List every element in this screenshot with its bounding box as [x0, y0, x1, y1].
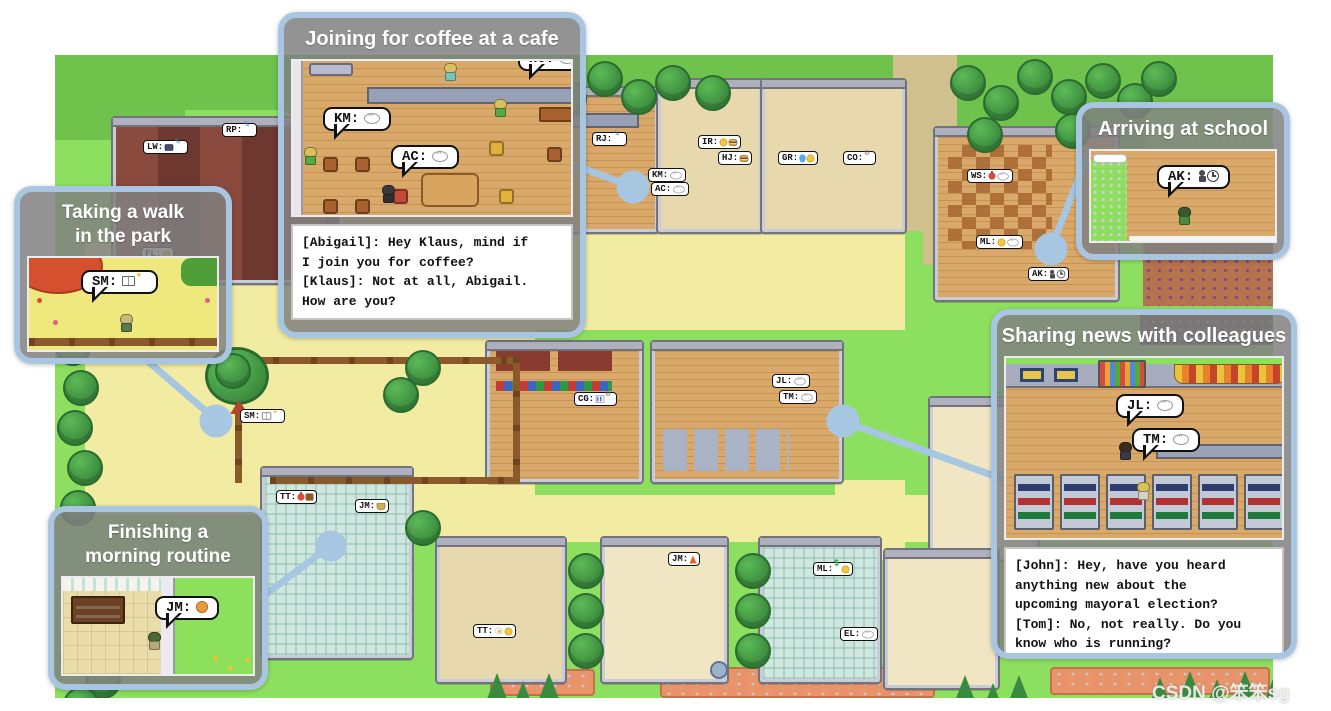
callout-news-dialogue: [John]: Hey, have you heard anything new…	[1004, 547, 1284, 659]
bubble-code: SM:	[92, 274, 117, 290]
chair	[323, 157, 338, 172]
speech-bubble-ak: AK:	[1157, 165, 1230, 189]
agent-sprite	[147, 632, 162, 654]
shelf	[1152, 474, 1192, 530]
figure-icon	[1049, 269, 1055, 278]
pencil-icon	[175, 143, 184, 152]
agent-chip-code: ML:	[980, 237, 996, 247]
agent-chip-code: RJ:	[596, 134, 612, 144]
agent-sprite	[119, 314, 134, 336]
picture-frame	[1020, 368, 1044, 382]
scrollbar[interactable]	[1129, 236, 1277, 241]
bubble-icons	[1198, 169, 1219, 185]
tree	[568, 633, 604, 669]
agent-chip: LW:	[143, 140, 188, 154]
shelf	[1060, 474, 1100, 530]
coin-icon	[505, 627, 513, 635]
chair	[323, 199, 338, 214]
callout-cafe-dialogue: [Abigail]: Hey Klaus, mind if I join you…	[291, 224, 573, 320]
speech-bubble-sm: SM:	[81, 270, 158, 294]
callout-park: Taking a walk in the park SM:	[14, 186, 232, 364]
agent-sprite	[381, 185, 396, 207]
chat-icon	[794, 377, 806, 385]
tool-icon	[606, 395, 614, 404]
umbrella	[710, 661, 728, 679]
fence	[29, 338, 217, 346]
agent-chip-code: ML:	[817, 564, 833, 574]
screenshot-canvas: LW:RP:FL:RJ:IR:HJ:GR:CO:KM:AC:WS:ML:AK:S…	[0, 0, 1331, 711]
bubble-icons	[559, 59, 573, 67]
callout-cafe: Joining for coffee at a cafe KM: AC: HU:…	[278, 12, 586, 338]
coin-icon	[842, 565, 850, 573]
cat-icon	[196, 601, 208, 613]
bubble-code: HU:	[529, 59, 554, 67]
tree	[735, 633, 771, 669]
chat-icon	[432, 151, 448, 162]
pine-tree	[1009, 675, 1029, 698]
tree	[621, 79, 657, 115]
chat-icon	[801, 393, 813, 401]
bubble-code: JL:	[1127, 398, 1152, 414]
agent-chip: GR:	[778, 151, 818, 165]
bubble-icons	[432, 149, 448, 165]
agent-chip: KM:	[648, 168, 686, 182]
chat-icon	[364, 113, 380, 124]
agent-chip-code: CO:	[847, 153, 863, 163]
agent-chip-code: TT:	[477, 626, 493, 636]
tree	[568, 553, 604, 589]
clock-icon	[1057, 270, 1066, 279]
agent-chip: RP:	[222, 123, 257, 137]
callout-park-title: Taking a walk in the park	[20, 192, 226, 256]
tree	[695, 75, 731, 111]
basket-icon	[377, 503, 386, 509]
garland	[1174, 364, 1284, 384]
chat-icon	[862, 630, 874, 638]
shelf	[1198, 474, 1238, 530]
tree	[950, 65, 986, 101]
fence	[235, 357, 520, 364]
book-icon	[262, 412, 271, 419]
agent-chip-code: KM:	[652, 170, 668, 180]
book-icon	[122, 276, 135, 286]
chair	[355, 199, 370, 214]
bubble-icons	[1157, 398, 1173, 414]
agent-sprite	[1177, 207, 1192, 229]
agent-chip: HJ:	[718, 151, 752, 165]
scrollbar[interactable]	[1093, 154, 1127, 163]
building-house	[437, 538, 565, 682]
callout-school-scene: AK:	[1089, 149, 1277, 243]
shelf	[1014, 474, 1054, 530]
tree	[405, 510, 441, 546]
flower-stand	[1098, 360, 1146, 388]
dollar-icon	[834, 565, 840, 574]
flower	[245, 658, 250, 663]
agent-chip: WS:	[967, 169, 1013, 183]
callout-news: Sharing news with colleagues JL: TM: [Jo…	[991, 309, 1297, 659]
speech-bubble-hu: HU:	[518, 59, 573, 71]
clock-icon	[1207, 170, 1219, 182]
agent-sprite	[1136, 482, 1151, 504]
gravel-yard	[1091, 161, 1127, 243]
agent-chip-code: LW:	[147, 142, 163, 152]
building-supermarket	[652, 342, 842, 482]
chair	[489, 141, 504, 156]
agent-chip-code: JM:	[672, 554, 688, 564]
flower	[37, 298, 42, 303]
chart-icon	[596, 395, 605, 402]
coin-icon	[807, 154, 815, 162]
agent-chip: JM:	[668, 552, 700, 566]
tree	[587, 61, 623, 97]
table	[539, 107, 573, 122]
agent-chip-code: AC:	[655, 184, 671, 194]
agent-chip-code: HJ:	[722, 153, 738, 163]
tree	[1017, 59, 1053, 95]
bubble-icons	[364, 111, 380, 127]
agent-chip: TT:	[276, 490, 317, 504]
agent-chip-code: IR:	[702, 137, 718, 147]
apple-icon	[989, 172, 996, 179]
agent-chip: JM:	[355, 499, 389, 513]
flower	[205, 298, 210, 303]
agent-chip: TT:	[473, 624, 516, 638]
callout-routine-title: Finishing a morning routine	[54, 512, 262, 576]
agent-chip-code: WS:	[971, 171, 987, 181]
flower	[213, 656, 218, 661]
fence	[270, 477, 520, 484]
speech-bubble-km: KM:	[323, 107, 391, 131]
tree	[568, 593, 604, 629]
chair	[499, 189, 514, 204]
agent-chip-code: TM:	[783, 392, 799, 402]
bubble-icons	[196, 600, 208, 616]
callout-cafe-scene: KM: AC: HU:	[291, 59, 573, 217]
sparkle-icon	[273, 412, 282, 421]
speech-bubble-jl: JL:	[1116, 394, 1184, 418]
flower	[53, 320, 58, 325]
callout-news-scene: JL: TM:	[1004, 356, 1284, 540]
bubble-code: AK:	[1168, 169, 1193, 185]
chat-icon	[670, 171, 682, 179]
callout-school: Arriving at school AK:	[1076, 102, 1290, 260]
callout-park-scene: SM:	[27, 256, 219, 352]
agent-sprite	[443, 63, 458, 85]
agent-sprite	[1118, 442, 1133, 464]
bubble-icons	[122, 274, 147, 290]
tree	[655, 65, 691, 101]
flower	[228, 666, 233, 671]
agent-chip-code: JL:	[776, 376, 792, 386]
shelf	[1244, 474, 1284, 530]
callout-routine: Finishing a morning routine JM:	[48, 506, 268, 690]
agent-chip: CO:	[843, 151, 876, 165]
agent-chip: AK:	[1028, 267, 1069, 281]
pencil-icon	[614, 135, 623, 144]
watermark: CSDN @笨笨sg	[1152, 678, 1290, 705]
chair	[547, 147, 562, 162]
agent-chip: JL:	[772, 374, 810, 388]
tree	[1085, 63, 1121, 99]
fire-icon	[690, 555, 697, 563]
picture-frame	[1054, 368, 1078, 382]
tree	[735, 593, 771, 629]
dresser	[71, 596, 125, 624]
chat-icon	[1173, 434, 1189, 445]
chat-icon	[1007, 238, 1019, 246]
agent-chip: RJ:	[592, 132, 627, 146]
chat-icon	[673, 185, 685, 193]
callout-cafe-title: Joining for coffee at a cafe	[284, 18, 580, 59]
coin-icon	[998, 238, 1006, 246]
wallpaper	[63, 578, 161, 591]
burger-icon	[729, 139, 738, 145]
agent-chip-code: GR:	[782, 153, 798, 163]
tree	[735, 553, 771, 589]
path-middle	[535, 230, 905, 330]
tree	[67, 450, 103, 486]
drop-icon	[799, 154, 805, 162]
agent-sprite	[493, 99, 508, 121]
sparkle-icon	[135, 275, 147, 287]
agent-chip-code: EL:	[844, 629, 860, 639]
speech-bubble-jm: JM:	[155, 596, 219, 620]
table	[421, 173, 479, 207]
agent-chip: ML:	[813, 562, 853, 576]
agent-chip-code: AK:	[1032, 269, 1048, 279]
case-icon	[165, 144, 174, 150]
agent-chip-code: TT:	[280, 492, 296, 502]
wall	[293, 61, 303, 215]
chat-icon	[997, 172, 1009, 180]
chat-icon	[1157, 400, 1173, 411]
callout-school-title: Arriving at school	[1082, 108, 1284, 149]
sofa	[309, 63, 353, 76]
tree	[63, 370, 99, 406]
chair	[355, 157, 370, 172]
agent-chip: IR:	[698, 135, 741, 149]
callout-news-title: Sharing news with colleagues	[997, 315, 1291, 356]
agent-chip-code: CG:	[578, 394, 594, 404]
fence	[513, 357, 520, 483]
building-house	[760, 538, 880, 682]
agent-chip: TM:	[779, 390, 817, 404]
building-house	[885, 550, 998, 688]
agent-chip-code: JM:	[359, 501, 375, 511]
tool-icon	[865, 154, 873, 163]
bush	[181, 258, 219, 286]
bubble-code: KM:	[334, 111, 359, 127]
bubble-code: AC:	[402, 149, 427, 165]
apple-icon	[298, 493, 305, 500]
egg-icon	[495, 627, 504, 634]
bag-icon	[306, 493, 314, 500]
tree	[57, 410, 93, 446]
callout-routine-scene: JM:	[61, 576, 255, 676]
cafe-counter	[367, 87, 573, 104]
speech-bubble-tm: TM:	[1132, 428, 1200, 452]
figure-icon	[1198, 170, 1207, 183]
chat-icon	[559, 59, 573, 64]
tree	[1141, 61, 1177, 97]
agent-chip: CG:	[574, 392, 617, 406]
smile-icon	[720, 138, 728, 146]
flower	[217, 316, 219, 321]
speech-bubble-ac: AC:	[391, 145, 459, 169]
tree	[405, 350, 441, 386]
bubble-code: JM:	[166, 600, 191, 616]
agent-chip: AC:	[651, 182, 689, 196]
agent-sprite	[303, 147, 318, 169]
tree	[967, 117, 1003, 153]
agent-chip: SM:	[240, 409, 285, 423]
room-floor	[63, 578, 161, 674]
building-house	[602, 538, 727, 682]
agent-chip: EL:	[840, 627, 878, 641]
agent-chip: ML:	[976, 235, 1023, 249]
bubble-code: TM:	[1143, 432, 1168, 448]
pencil-icon	[244, 126, 253, 135]
burger-icon	[740, 155, 749, 161]
agent-chip-code: RP:	[226, 125, 242, 135]
bubble-icons	[1173, 432, 1189, 448]
tree	[983, 85, 1019, 121]
agent-chip-code: SM:	[244, 411, 260, 421]
